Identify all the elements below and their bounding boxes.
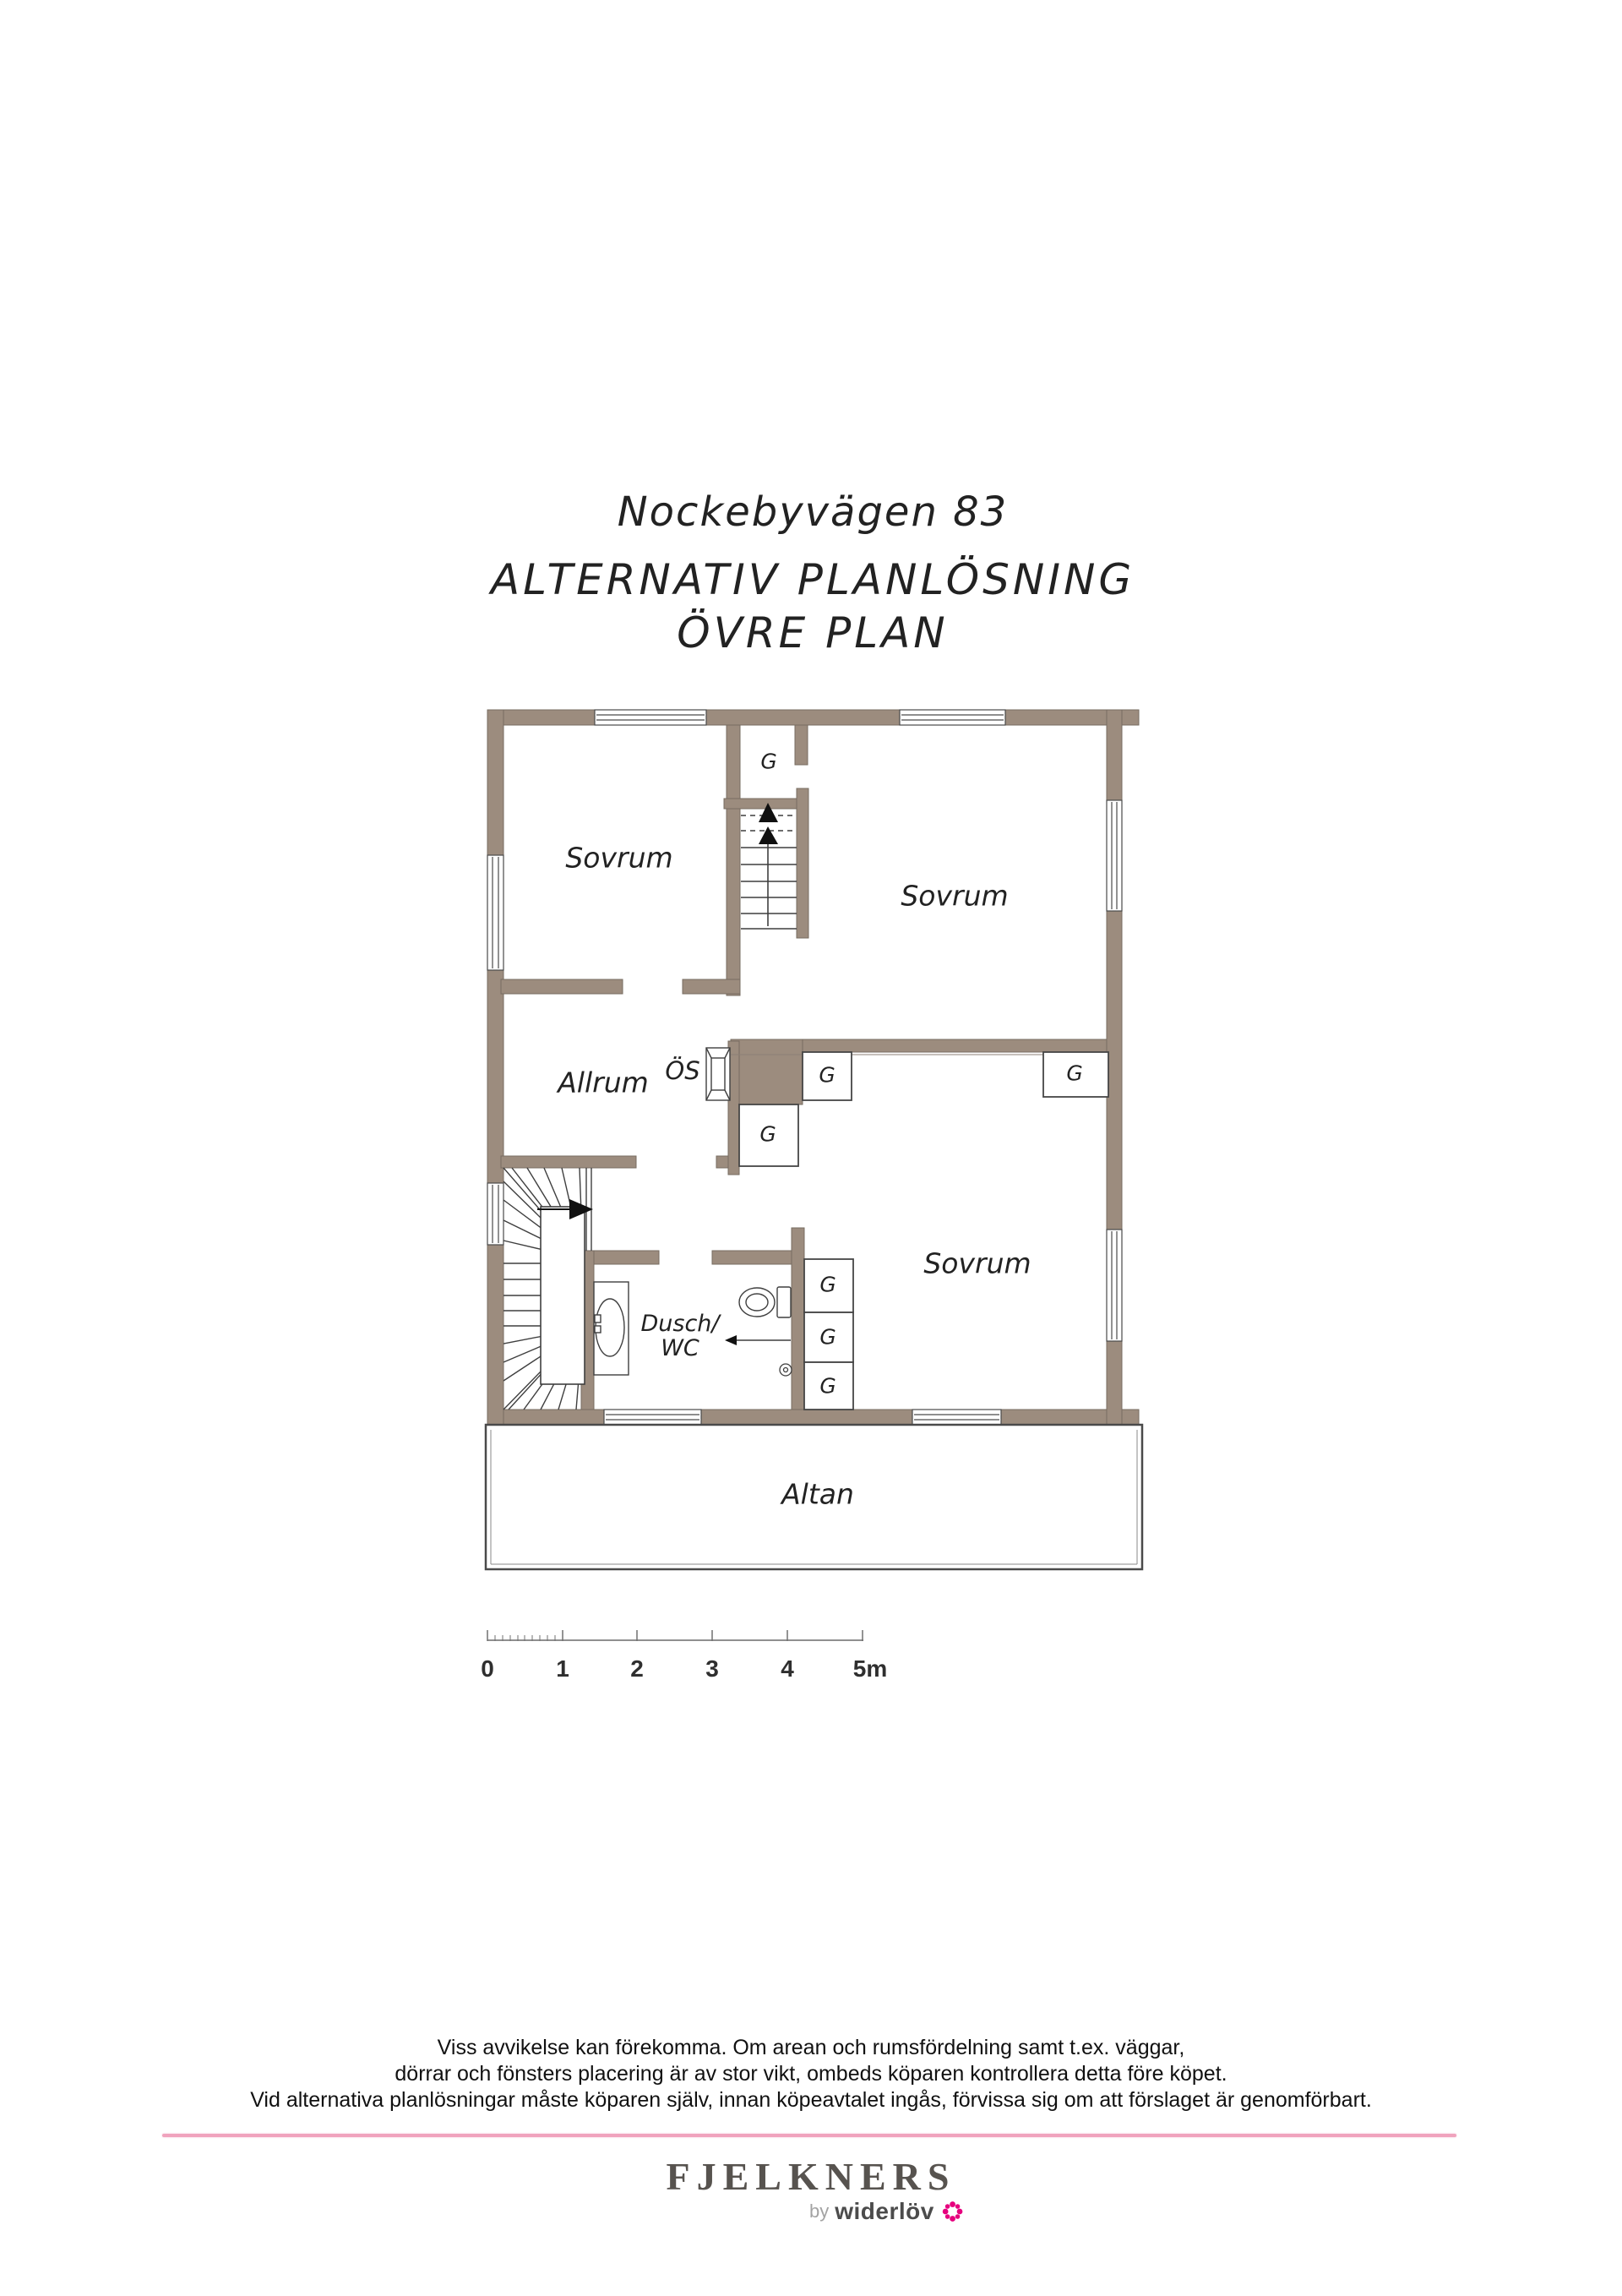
sink-symbol (780, 1364, 792, 1376)
pink-divider (162, 2134, 1456, 2137)
wardrobe-label-1: G (760, 750, 776, 774)
stair-newel-well (541, 1207, 585, 1384)
byline-prefix: by (809, 2201, 829, 2222)
scale-label-3: 3 (705, 1655, 719, 1682)
shower-wc-line1: Dusch/ (640, 1312, 719, 1336)
room-label-living-room: Allrum (558, 1066, 649, 1099)
floorplan-page: Nockebyvägen 83 ALTERNATIV PLANLÖSNING Ö… (0, 0, 1622, 2296)
disclaimer-text: Viss avvikelse kan förekomma. Om arean o… (250, 2035, 1372, 2113)
widerlov-flower-icon (940, 2195, 965, 2228)
page-title: Nockebyvägen 83 (618, 488, 1008, 536)
floor-plan-drawing: 0 1 2 3 4 5m (456, 676, 1200, 1690)
scale-label-5m: 5m (853, 1655, 887, 1682)
shower-symbol (594, 1282, 629, 1375)
disclaimer-line-3: Vid alternativa planlösningar måste köpa… (250, 2087, 1372, 2113)
wardrobe-label-7: G (819, 1374, 835, 1399)
wardrobe-label-2: G (819, 1063, 835, 1088)
byline-name: widerlöv (835, 2198, 934, 2225)
scale-label-1: 1 (556, 1655, 569, 1682)
shower-wc-line2: WC (640, 1336, 719, 1361)
wardrobe-label-6: G (819, 1325, 835, 1350)
disclaimer-line-1: Viss avvikelse kan förekomma. Om arean o… (250, 2035, 1372, 2061)
wardrobe-label-3: G (1066, 1061, 1082, 1086)
scale-label-4: 4 (781, 1655, 794, 1682)
fireplace-symbol (706, 1048, 730, 1100)
room-label-terrace: Altan (781, 1478, 854, 1511)
room-label-bedroom-3: Sovrum (923, 1247, 1031, 1280)
wardrobe-label-5: G (819, 1273, 835, 1297)
wc-door-arrow (725, 1335, 791, 1345)
scale-label-2: 2 (630, 1655, 644, 1682)
room-label-bedroom-2: Sovrum (901, 880, 1008, 913)
scale-bar: 0 1 2 3 4 5m (481, 1630, 887, 1682)
page-subtitle: ALTERNATIV PLANLÖSNING (491, 555, 1135, 604)
wardrobe-label-4: G (759, 1122, 776, 1147)
page-subtitle-floor: ÖVRE PLAN (677, 608, 948, 657)
room-label-bedroom-1: Sovrum (565, 842, 672, 875)
scale-label-0: 0 (481, 1655, 494, 1682)
toilet-symbol (739, 1287, 791, 1317)
brand-wordmark: FJELKNERS (667, 2154, 956, 2199)
brand-byline: by widerlöv (809, 2195, 965, 2228)
disclaimer-line-2: dörrar och fönsters placering är av stor… (250, 2061, 1372, 2087)
room-label-fireplace: ÖS (665, 1056, 699, 1085)
room-label-shower-wc: Dusch/ WC (640, 1312, 719, 1361)
